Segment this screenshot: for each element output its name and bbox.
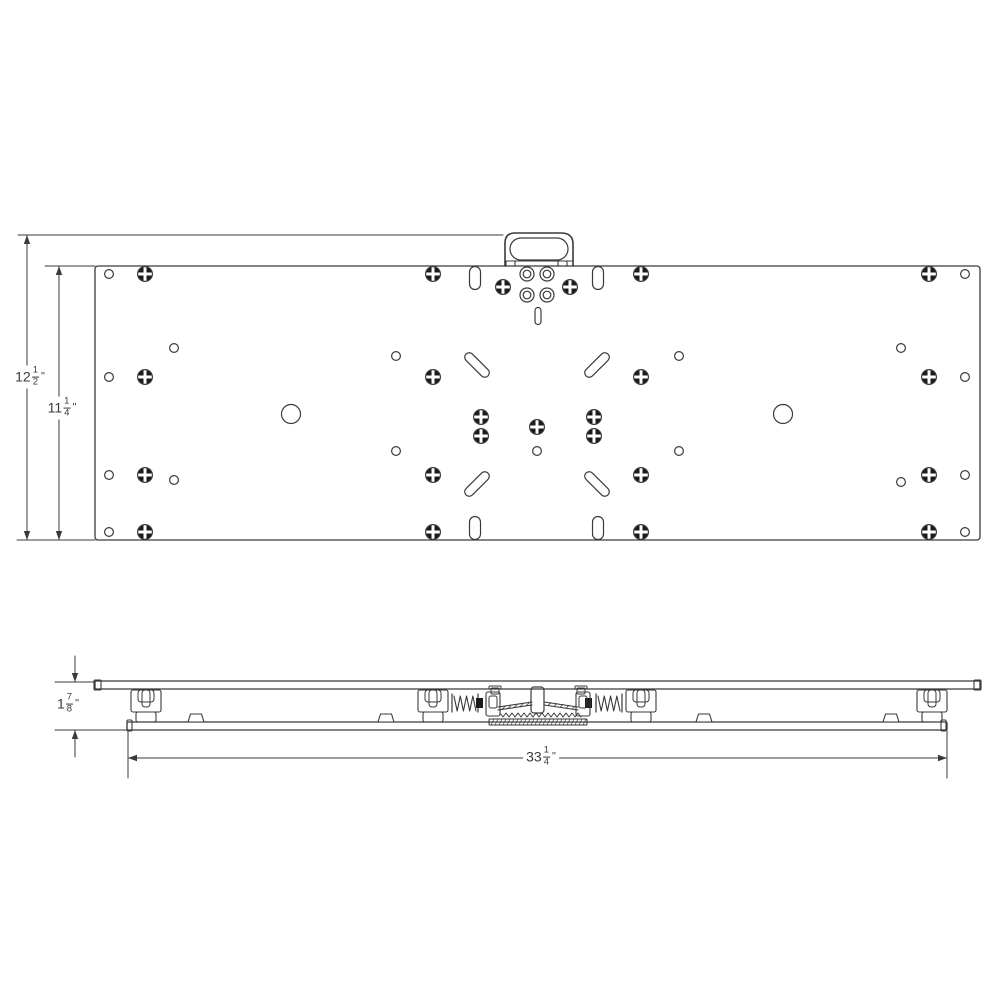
- small-hole: [675, 352, 684, 361]
- dim-fraction: 78: [66, 693, 73, 716]
- spring-block: [585, 698, 592, 708]
- inch-mark: ": [75, 699, 79, 710]
- drawing-svg: [0, 0, 1000, 1000]
- diagonal-slot: [583, 470, 611, 498]
- small-hole: [961, 471, 970, 480]
- dim-value: 12: [15, 370, 31, 384]
- spring-block: [476, 698, 483, 708]
- ring-hole-outer: [520, 267, 534, 281]
- small-hole: [675, 447, 684, 456]
- ring-hole-inner: [523, 270, 531, 278]
- dimension-arrow: [56, 266, 62, 275]
- vertical-slot: [593, 517, 604, 540]
- ring-hole-outer: [540, 288, 554, 302]
- ring-hole-inner: [523, 291, 531, 299]
- slide-truck-foot: [423, 712, 443, 722]
- slide-truck-inner-slot: [429, 690, 437, 707]
- spring-coil: [454, 696, 476, 711]
- dim-value: 1: [57, 697, 65, 711]
- dim-value: 11: [48, 401, 63, 415]
- ring-hole-outer: [540, 267, 554, 281]
- dim-fraction: 14: [543, 746, 550, 769]
- dim-label-overall-height: 1212": [12, 366, 48, 389]
- vertical-slot: [470, 517, 481, 540]
- slide-truck-inner-slot: [928, 690, 936, 707]
- dimension-arrow: [24, 531, 30, 540]
- dim-fraction: 14: [63, 397, 70, 420]
- rail-stop: [188, 714, 204, 722]
- ring-hole-inner: [543, 270, 551, 278]
- diagonal-slot: [463, 351, 491, 379]
- inch-mark: ": [72, 403, 76, 414]
- dimension-arrow: [24, 235, 30, 244]
- slide-truck-slot: [924, 690, 940, 702]
- slide-truck-body: [626, 690, 656, 712]
- slide-truck-slot: [425, 690, 441, 702]
- small-hole: [897, 344, 906, 353]
- small-hole: [961, 373, 970, 382]
- latch-post: [531, 687, 544, 713]
- slide-truck-slot: [633, 690, 649, 702]
- dimension-arrow: [72, 673, 78, 682]
- large-hole: [774, 405, 793, 424]
- latch-arm-slot: [489, 696, 497, 708]
- small-hole: [392, 447, 401, 456]
- small-hole: [105, 373, 114, 382]
- inch-mark: ": [552, 752, 556, 763]
- small-hole: [105, 471, 114, 480]
- dimension-arrow: [56, 531, 62, 540]
- rail-stop: [696, 714, 712, 722]
- dim-value: 33: [526, 750, 542, 764]
- small-hole: [897, 478, 906, 487]
- rail-stop: [378, 714, 394, 722]
- slide-truck-foot: [631, 712, 651, 722]
- vertical-slot: [593, 267, 604, 290]
- dimension-lines: [17, 235, 947, 778]
- small-hole: [961, 270, 970, 279]
- spring-coil: [598, 696, 620, 711]
- dim-label-plate-height: 1114": [45, 397, 80, 420]
- dim-fraction: 12: [32, 366, 39, 389]
- dimension-arrow: [938, 755, 947, 761]
- handle-tab: [558, 261, 567, 266]
- dimension-arrow: [128, 755, 137, 761]
- rail-stop: [883, 714, 899, 722]
- slide-truck-body: [917, 690, 947, 712]
- slide-truck-foot: [922, 712, 942, 722]
- diagonal-slot: [463, 470, 491, 498]
- ring-hole-inner: [543, 291, 551, 299]
- small-hole: [533, 447, 542, 456]
- technical-drawing-page: 1212" 1114" 178" 3314": [0, 0, 1000, 1000]
- side-top-plate: [95, 681, 980, 689]
- large-hole: [282, 405, 301, 424]
- slide-truck-inner-slot: [637, 690, 645, 707]
- release-handle-grip: [510, 238, 568, 260]
- diagonal-slot: [583, 351, 611, 379]
- slide-truck-body: [131, 690, 161, 712]
- small-hole: [105, 528, 114, 537]
- small-hole: [170, 344, 179, 353]
- side-view: [94, 680, 981, 731]
- small-hole: [105, 270, 114, 279]
- dimension-arrow: [72, 730, 78, 739]
- inch-mark: ": [41, 372, 45, 383]
- slide-truck-slot: [138, 690, 154, 702]
- slide-truck-foot: [136, 712, 156, 722]
- dim-label-side-height: 178": [54, 693, 82, 716]
- slide-truck-body: [418, 690, 448, 712]
- small-hole: [961, 528, 970, 537]
- center-slot: [535, 308, 541, 325]
- side-bottom-rail: [127, 722, 947, 730]
- ring-hole-outer: [520, 288, 534, 302]
- slide-truck-inner-slot: [142, 690, 150, 707]
- top-view: [95, 233, 980, 540]
- vertical-slot: [470, 267, 481, 290]
- handle-tab: [506, 261, 515, 266]
- small-hole: [170, 476, 179, 485]
- small-hole: [392, 352, 401, 361]
- dim-label-overall-width: 3314": [523, 746, 559, 769]
